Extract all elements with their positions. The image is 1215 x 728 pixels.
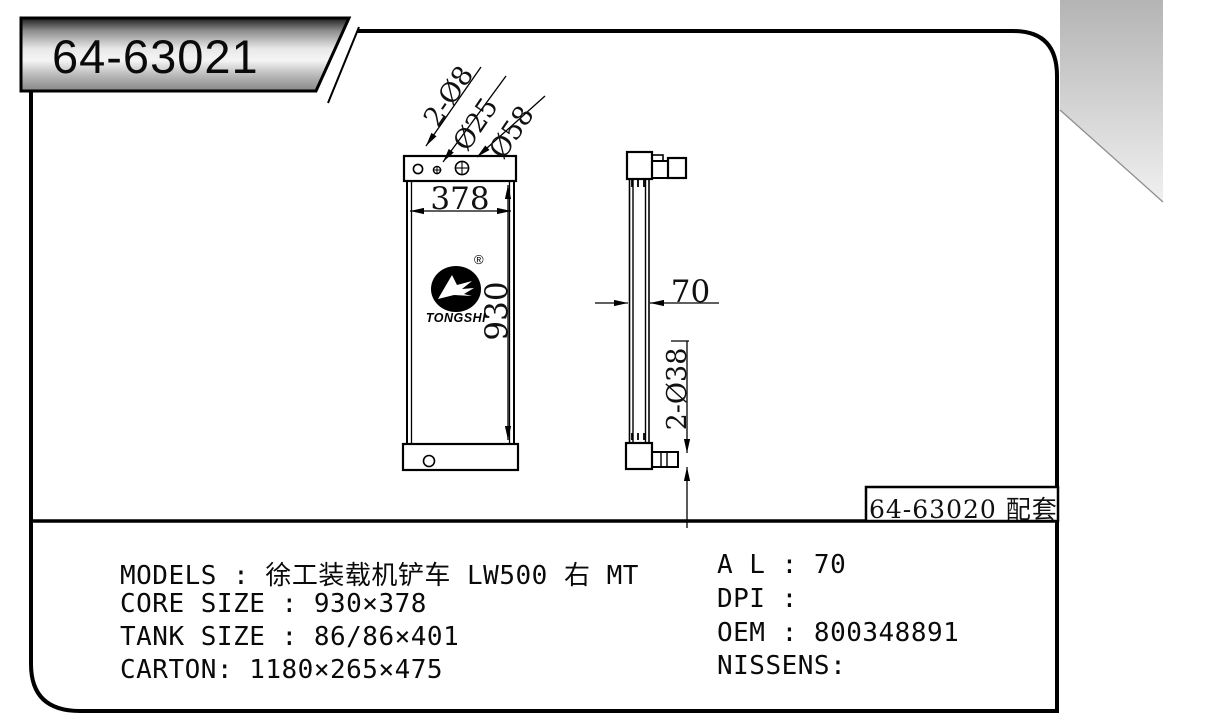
spec-models: MODELS : 徐工装载机铲车 LW500 右 MT: [120, 555, 639, 592]
side-top-pipe: [652, 161, 668, 178]
spec-nissens: NISSENS:: [717, 651, 846, 681]
spec-carton: CARTON: 1180×265×475: [120, 655, 443, 685]
corner-shade: [1060, 0, 1163, 202]
spec-oem: OEM : 800348891: [717, 618, 959, 648]
spec-core-size: CORE SIZE : 930×378: [120, 589, 427, 619]
side-bottom-tank: [626, 443, 652, 469]
dim-width-value: 378: [420, 181, 500, 217]
side-view: [595, 152, 719, 528]
fin-ticks-top: [632, 180, 644, 187]
registered-trademark-icon: ®: [474, 252, 484, 267]
port-circle-small: [413, 164, 422, 173]
tongshi-logo-icon: [431, 266, 481, 312]
front-bottom-tank: [403, 444, 518, 470]
spec-dpi: DPI :: [717, 584, 798, 614]
dim-pipe-value: 2-Ø38: [662, 339, 690, 439]
spec-tank-size: TANK SIZE : 86/86×401: [120, 622, 459, 652]
part-number-title: 64-63021: [52, 29, 259, 84]
drawing-sheet: 64-63021 64-63020 配套 2-Ø8 Ø25 Ø58 378 93…: [0, 0, 1215, 728]
side-top-tank: [627, 152, 652, 179]
drain-circle: [424, 456, 435, 467]
dim-depth-value: 70: [668, 274, 713, 310]
spec-al: A L : 70: [717, 550, 846, 580]
tongshi-logo-wordmark: TONGSHI: [414, 311, 498, 325]
paired-part-label: 64-63020 配套: [869, 490, 1058, 526]
side-bottom-pipe: [652, 452, 678, 467]
fin-ticks-bottom: [632, 433, 644, 440]
